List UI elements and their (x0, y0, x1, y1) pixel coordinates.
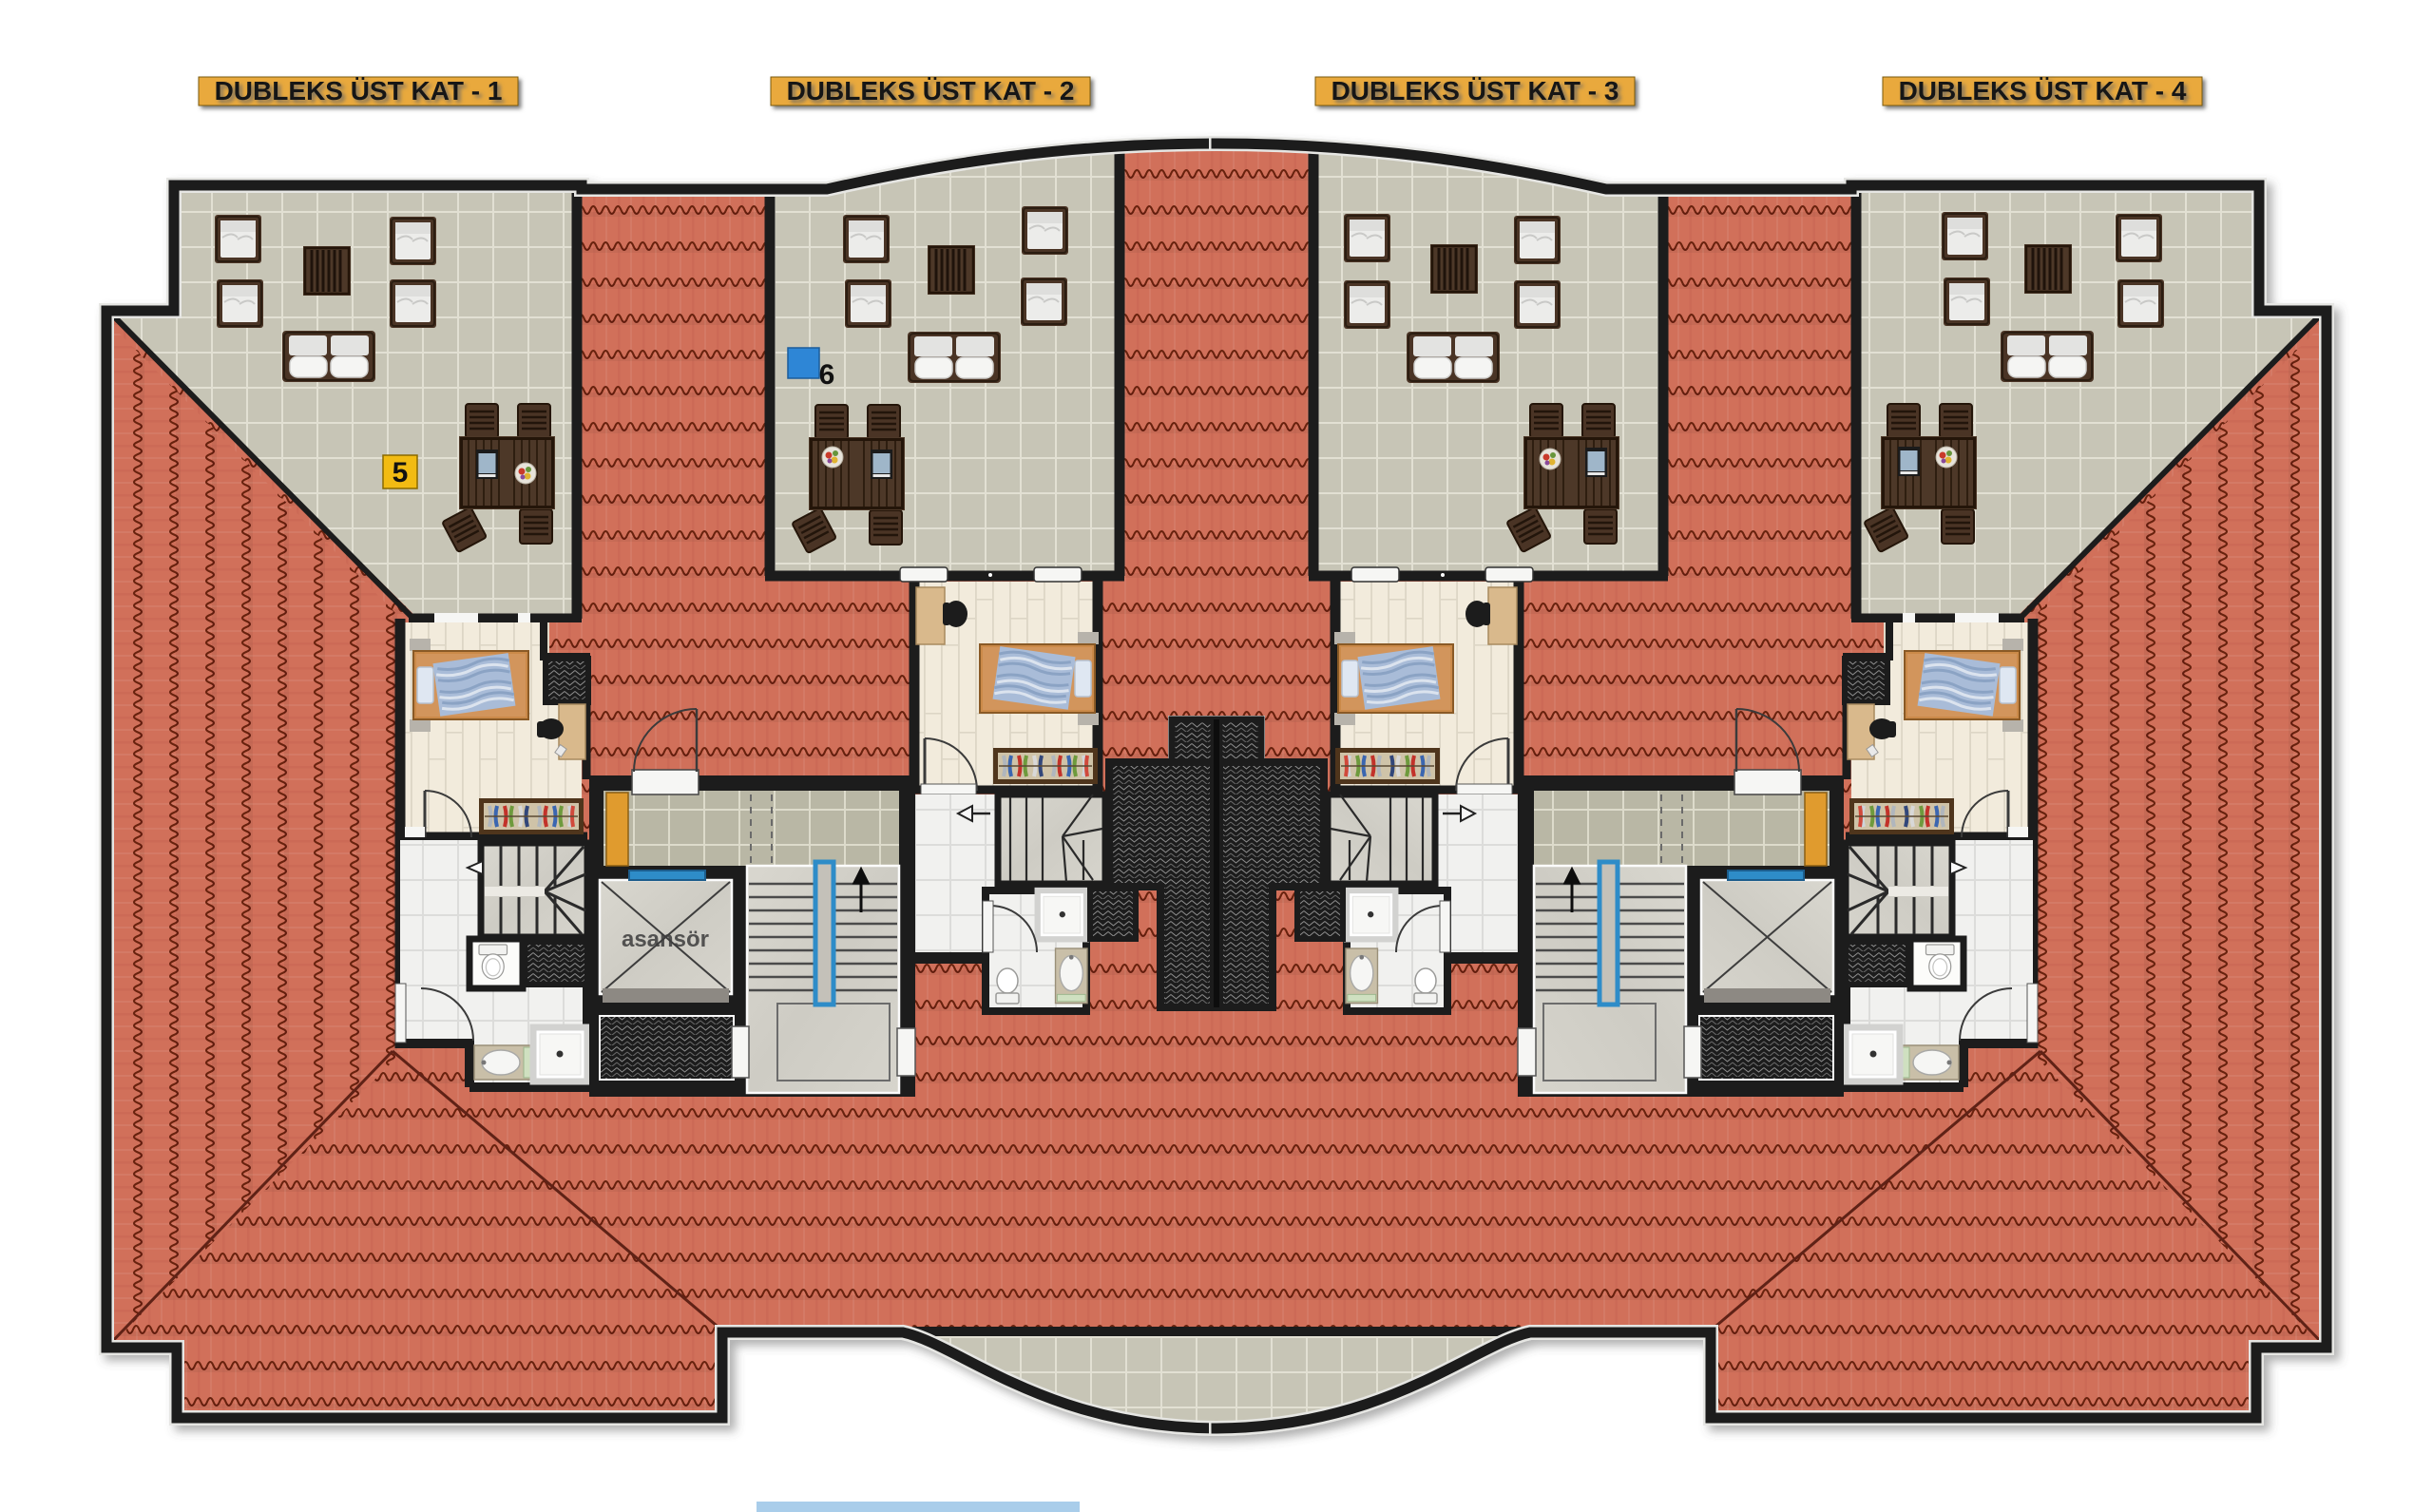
svg-text:DUBLEKS ÜST KAT - 3: DUBLEKS ÜST KAT - 3 (1331, 76, 1619, 105)
svg-text:DUBLEKS ÜST KAT - 4: DUBLEKS ÜST KAT - 4 (1899, 76, 2187, 105)
svg-text:6: 6 (819, 359, 835, 391)
svg-text:DUBLEKS ÜST KAT - 2: DUBLEKS ÜST KAT - 2 (787, 76, 1075, 105)
svg-text:5: 5 (393, 457, 409, 488)
svg-text:DUBLEKS ÜST KAT - 1: DUBLEKS ÜST KAT - 1 (215, 76, 503, 105)
svg-text:asansör: asansör (622, 927, 709, 952)
